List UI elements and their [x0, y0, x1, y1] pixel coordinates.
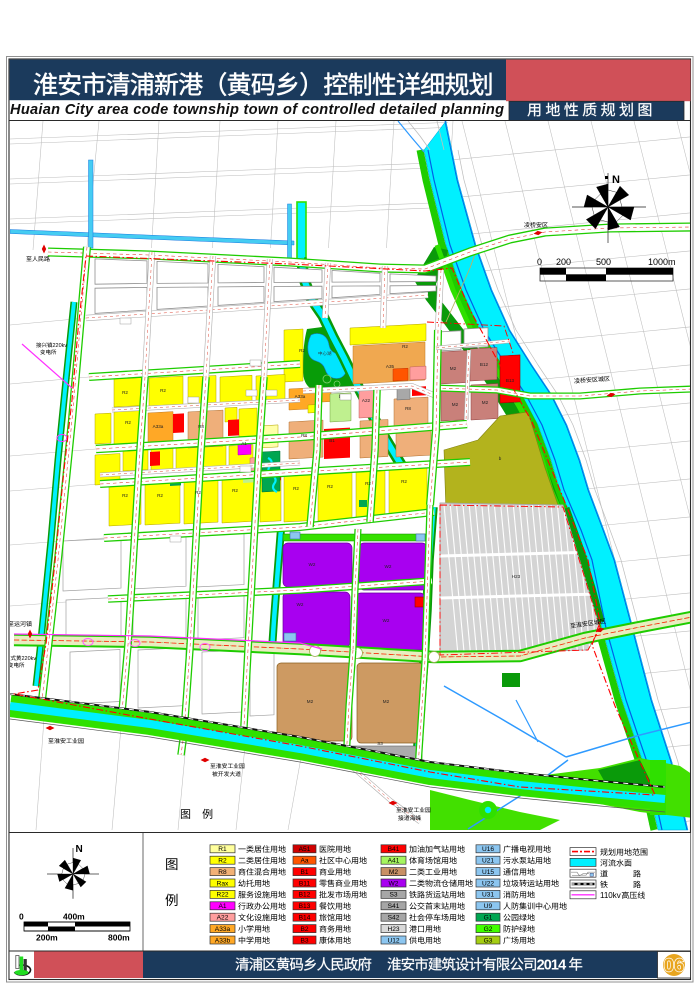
svg-text:R22: R22	[216, 892, 228, 899]
svg-text:R8: R8	[218, 869, 227, 876]
svg-text:A33b: A33b	[215, 937, 231, 944]
svg-text:R2: R2	[195, 490, 201, 495]
svg-text:U15: U15	[482, 869, 494, 876]
svg-text:R2: R2	[401, 479, 407, 484]
svg-text:N: N	[612, 174, 620, 186]
svg-text:G1: G1	[484, 915, 493, 922]
svg-text:B1: B1	[329, 438, 335, 443]
svg-text:U16: U16	[482, 846, 494, 853]
svg-text:W2: W2	[389, 880, 399, 887]
svg-text:M2: M2	[389, 869, 398, 876]
svg-text:R2: R2	[122, 390, 128, 395]
svg-text:R8: R8	[198, 424, 204, 429]
svg-text:R2: R2	[232, 488, 238, 493]
svg-text:W2: W2	[297, 602, 304, 607]
svg-text:R2: R2	[365, 481, 371, 486]
svg-text:R1: R1	[218, 846, 227, 853]
svg-text:B1: B1	[300, 869, 308, 876]
svg-text:R2: R2	[402, 344, 408, 349]
svg-text:400m: 400m	[63, 912, 85, 922]
svg-text:W2: W2	[383, 618, 390, 623]
svg-text:A1: A1	[241, 441, 247, 446]
svg-text:G2: G2	[484, 926, 493, 933]
svg-text:A41: A41	[388, 858, 400, 865]
svg-text:M2: M2	[452, 402, 459, 407]
svg-text:B13: B13	[506, 378, 515, 383]
svg-text:500: 500	[596, 257, 611, 267]
svg-text:B13: B13	[299, 903, 311, 910]
svg-text:Huaian City area code township: Huaian City area code township town of c…	[10, 102, 504, 118]
svg-text:220kv: 220kv	[22, 656, 37, 662]
svg-text:M2: M2	[450, 366, 457, 371]
svg-text:U12: U12	[387, 937, 399, 944]
svg-text:S41: S41	[388, 903, 400, 910]
svg-text:S3: S3	[377, 741, 383, 746]
svg-text:220kv: 220kv	[53, 343, 68, 349]
svg-text:A1: A1	[218, 903, 226, 910]
svg-text:R2: R2	[218, 858, 227, 865]
svg-text:A22: A22	[362, 398, 371, 403]
svg-text:0: 0	[19, 912, 24, 922]
svg-text:A33a: A33a	[153, 424, 164, 429]
svg-text:R2: R2	[125, 420, 131, 425]
svg-text:R8: R8	[301, 433, 307, 438]
svg-text:800m: 800m	[108, 933, 130, 943]
svg-text:M2: M2	[383, 699, 390, 704]
svg-text:A33a: A33a	[295, 394, 306, 399]
svg-text:06: 06	[664, 955, 685, 976]
svg-text:H23: H23	[387, 926, 399, 933]
svg-text:B11: B11	[299, 880, 311, 887]
svg-text:1000m: 1000m	[648, 257, 676, 267]
svg-text:R2: R2	[157, 493, 163, 498]
svg-text:R2: R2	[293, 486, 299, 491]
svg-text:W2: W2	[385, 564, 392, 569]
svg-text:A22: A22	[217, 915, 229, 922]
svg-text:W2: W2	[309, 562, 316, 567]
svg-text:Rax: Rax	[217, 880, 229, 887]
svg-text:Aa: Aa	[300, 858, 308, 865]
svg-text:B12: B12	[299, 892, 311, 899]
svg-text:N: N	[76, 844, 83, 855]
svg-text:200m: 200m	[36, 933, 58, 943]
svg-text:U31: U31	[482, 892, 494, 899]
svg-text:G3: G3	[484, 937, 493, 944]
svg-text:0: 0	[537, 257, 542, 267]
svg-text:A51: A51	[299, 846, 311, 853]
svg-text:B12: B12	[480, 362, 489, 367]
svg-text:M2: M2	[307, 699, 314, 704]
svg-text:M2: M2	[482, 400, 489, 405]
svg-text:R2: R2	[160, 388, 166, 393]
svg-text:R2: R2	[327, 484, 333, 489]
svg-text:R2: R2	[122, 493, 128, 498]
svg-text:R8: R8	[405, 406, 411, 411]
svg-text:U21: U21	[482, 858, 494, 865]
svg-text:2014: 2014	[537, 958, 566, 974]
svg-text:200: 200	[556, 257, 571, 267]
svg-text:b: b	[499, 456, 502, 461]
svg-text:S3: S3	[389, 892, 397, 899]
svg-text:A33a: A33a	[215, 926, 231, 933]
svg-text:S42: S42	[388, 915, 400, 922]
svg-text:R2: R2	[299, 348, 305, 353]
svg-text:B14: B14	[299, 915, 311, 922]
svg-text:U9: U9	[484, 903, 493, 910]
svg-text:H23: H23	[512, 574, 521, 579]
svg-text:B41: B41	[388, 846, 400, 853]
svg-text:U22: U22	[482, 880, 494, 887]
svg-text:A35: A35	[386, 364, 395, 369]
svg-text:110kv: 110kv	[600, 891, 621, 900]
svg-text:B2: B2	[300, 926, 308, 933]
svg-text:B3: B3	[300, 937, 308, 944]
